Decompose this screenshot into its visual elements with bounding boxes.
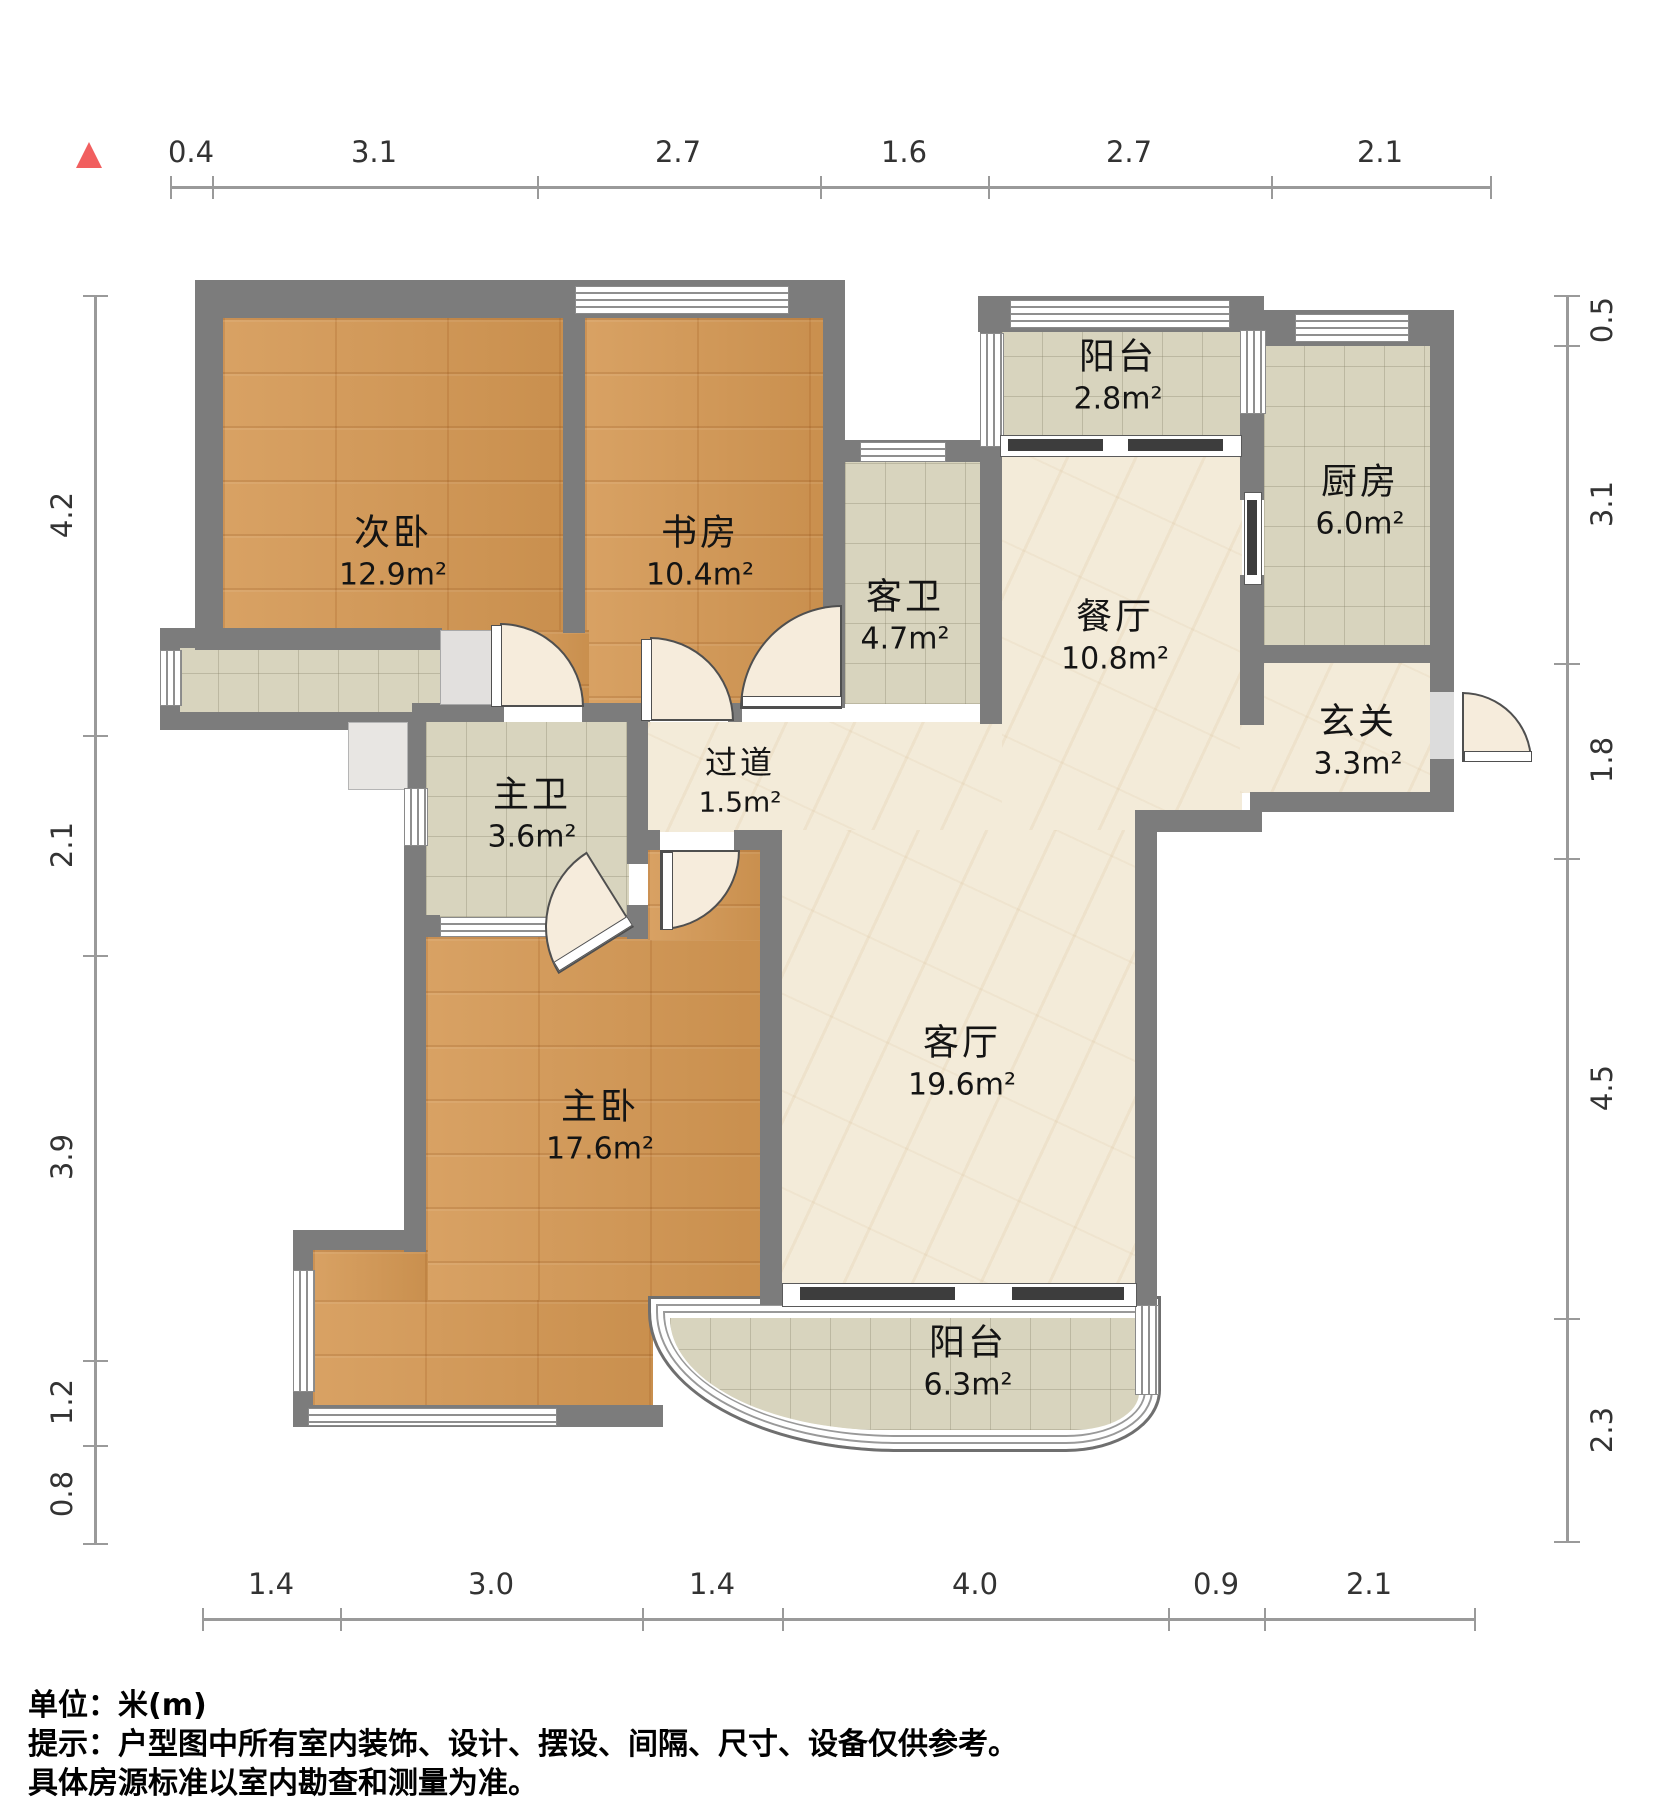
room-name: 客厅 [908, 1014, 1016, 1066]
tick [1554, 663, 1580, 665]
window-bay-left [293, 1270, 315, 1392]
room-area: 3.3m² [1314, 747, 1403, 782]
dim-top-0: 0.4 [168, 135, 214, 169]
slider-panel [800, 1287, 955, 1300]
dim-bottom-4: 0.9 [1193, 1567, 1239, 1601]
floorplan-canvas: 次卧 12.9m² 书房 10.4m² 客卫 4.7m² 阳台 2.8m² 厨房… [0, 0, 1670, 1810]
balcony-bottom-shell [648, 1296, 1161, 1452]
dim-bottom-1: 3.0 [468, 1567, 514, 1601]
wall [563, 318, 585, 633]
wall [1250, 792, 1454, 812]
wall [1240, 412, 1264, 500]
dim-left-2: 3.9 [45, 1134, 79, 1180]
floor-hall-connector [1240, 723, 1264, 793]
room-area: 17.6m² [546, 1132, 654, 1167]
room-name: 厨房 [1316, 453, 1405, 505]
window-balcony-top-left [980, 333, 1004, 447]
tick [83, 735, 108, 737]
window-kitchen-top [1295, 314, 1409, 342]
dim-line-right [1566, 295, 1569, 1543]
room-area: 3.6m² [488, 820, 577, 855]
wall [1240, 575, 1264, 725]
dim-right-2: 1.8 [1585, 737, 1619, 783]
wall [582, 703, 650, 722]
dim-bottom-2: 1.4 [689, 1567, 735, 1601]
room-area: 2.8m² [1074, 382, 1163, 417]
window-guest-bath [860, 442, 946, 462]
room-label-entry-hall: 玄关 3.3m² [1314, 693, 1403, 782]
dim-line-left [94, 295, 97, 1545]
room-label-balcony-bottom: 阳台 6.3m² [924, 1314, 1013, 1403]
north-arrow-icon [76, 142, 102, 168]
room-label-kitchen: 厨房 6.0m² [1316, 453, 1405, 542]
wall [628, 830, 660, 850]
tick [340, 1608, 342, 1631]
window-left-platform [160, 650, 182, 706]
dim-left-4: 0.8 [45, 1471, 79, 1517]
room-label-master-bedroom: 主卧 17.6m² [546, 1078, 654, 1167]
tick [537, 176, 539, 199]
room-area: 10.8m² [1061, 642, 1169, 677]
dim-top-5: 2.1 [1357, 135, 1403, 169]
tick [83, 955, 108, 957]
dim-top-4: 2.7 [1106, 135, 1152, 169]
tick [212, 176, 214, 199]
dim-bottom-0: 1.4 [248, 1567, 294, 1601]
footer-notice-2: 具体房源标准以室内勘查和测量为准。 [28, 1764, 1018, 1803]
room-label-balcony-top: 阳台 2.8m² [1074, 328, 1163, 417]
tick [782, 1608, 784, 1631]
room-area: 10.4m² [646, 558, 754, 593]
room-label-study: 书房 10.4m² [646, 504, 754, 593]
wall [404, 922, 426, 1252]
left-niche [348, 722, 408, 790]
room-label-living: 客厅 19.6m² [908, 1014, 1016, 1103]
dim-top-2: 2.7 [655, 135, 701, 169]
dim-right-1: 3.1 [1585, 481, 1619, 527]
entry-door-recess [1430, 692, 1454, 759]
footer-notice-1: 提示：户型图中所有室内装饰、设计、摆设、间隔、尺寸、设备仅供参考。 [28, 1725, 1018, 1764]
dim-right-0: 0.5 [1585, 297, 1619, 343]
wall [1240, 296, 1264, 332]
dim-bottom-5: 2.1 [1346, 1567, 1392, 1601]
tick [83, 295, 108, 297]
room-label-secondary-bedroom: 次卧 12.9m² [339, 504, 447, 593]
window-bay-bottom [308, 1408, 557, 1426]
dim-line-bottom [202, 1618, 1474, 1621]
footer-unit: 单位：米(m) [28, 1686, 1018, 1725]
room-name: 主卧 [546, 1078, 654, 1130]
dim-left-1: 2.1 [45, 822, 79, 868]
door-leaf [641, 639, 652, 721]
door-leaf [662, 852, 673, 930]
door-leaf [1464, 751, 1532, 762]
room-name: 客卫 [861, 568, 950, 620]
tick [1474, 1608, 1476, 1631]
room-area: 6.0m² [1316, 507, 1405, 542]
window-dining-right [1240, 330, 1266, 414]
slider-panel [1012, 1287, 1124, 1300]
tick [83, 1445, 108, 1447]
tick [1271, 176, 1273, 199]
dim-left-0: 4.2 [45, 492, 79, 538]
footer-disclaimer: 单位：米(m) 提示：户型图中所有室内装饰、设计、摆设、间隔、尺寸、设备仅供参考… [28, 1686, 1018, 1803]
window-balcony-top [1010, 300, 1230, 328]
window-master-bath [404, 788, 428, 846]
slider-panel [1247, 500, 1257, 575]
tick [642, 1608, 644, 1631]
room-area: 6.3m² [924, 1368, 1013, 1403]
tick [1554, 1541, 1580, 1543]
tick [1168, 1608, 1170, 1631]
dim-top-1: 3.1 [351, 135, 397, 169]
tick [83, 1360, 108, 1362]
wall [1262, 645, 1454, 663]
room-area: 1.5m² [698, 786, 781, 819]
room-name: 阳台 [924, 1314, 1013, 1366]
slider-panel [1128, 439, 1223, 451]
door-leaf [742, 696, 842, 707]
wall [1135, 830, 1157, 1308]
dim-line-top [170, 186, 1490, 189]
window-study-top [575, 286, 789, 314]
wall [1430, 310, 1454, 692]
tick [1554, 1318, 1580, 1320]
tick [202, 1608, 204, 1631]
room-area: 19.6m² [908, 1068, 1016, 1103]
wall [760, 830, 782, 1303]
door-leaf [491, 625, 502, 707]
wall [195, 628, 442, 650]
dim-right-3: 4.5 [1585, 1065, 1619, 1111]
slider-panel [1008, 439, 1103, 451]
door-entrance [1462, 692, 1532, 762]
room-name: 玄关 [1314, 693, 1403, 745]
floor-left-platform [178, 648, 442, 714]
room-name: 餐厅 [1061, 588, 1169, 640]
tick [820, 176, 822, 199]
room-label-dining: 餐厅 10.8m² [1061, 588, 1169, 677]
room-name: 过道 [698, 738, 781, 784]
tick [1490, 176, 1492, 199]
tick [1554, 295, 1580, 297]
room-name: 主卫 [488, 766, 577, 818]
wall [195, 280, 223, 640]
room-area: 12.9m² [339, 558, 447, 593]
room-label-corridor: 过道 1.5m² [698, 738, 781, 819]
room-name: 书房 [646, 504, 754, 556]
tick [988, 176, 990, 199]
tick [1554, 345, 1580, 347]
dim-right-4: 2.3 [1585, 1407, 1619, 1453]
window-balcony-bottom-right [1135, 1305, 1159, 1395]
tick [170, 176, 172, 199]
room-label-master-bath: 主卫 3.6m² [488, 766, 577, 855]
wall [293, 1230, 426, 1250]
tick [1554, 858, 1580, 860]
room-name: 次卧 [339, 504, 447, 556]
tick [1264, 1608, 1266, 1631]
room-label-guest-bath: 客卫 4.7m² [861, 568, 950, 657]
room-name: 阳台 [1074, 328, 1163, 380]
dim-bottom-3: 4.0 [952, 1567, 998, 1601]
room-area: 4.7m² [861, 622, 950, 657]
floor-balcony-bottom [670, 1318, 1139, 1430]
dim-left-3: 1.2 [45, 1379, 79, 1425]
wall [1135, 810, 1262, 832]
tick [83, 1543, 108, 1545]
floor-master-bay [313, 1300, 653, 1410]
dim-top-3: 1.6 [881, 135, 927, 169]
